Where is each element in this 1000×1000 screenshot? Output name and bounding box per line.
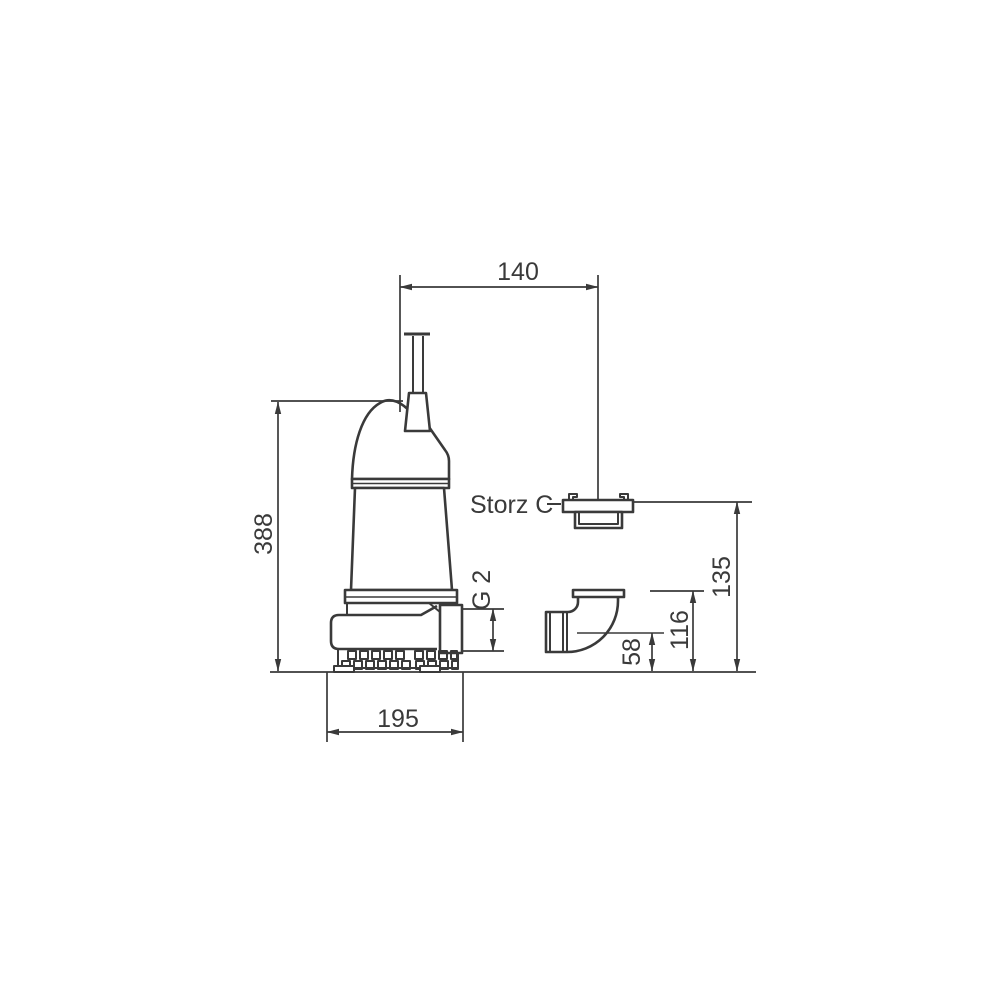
dim-label-135: 135 bbox=[708, 556, 736, 598]
motor-body bbox=[351, 488, 452, 590]
right-foot bbox=[420, 666, 440, 672]
pump-side-view bbox=[331, 334, 462, 672]
ext-lines-port-bore bbox=[462, 609, 504, 651]
dim-label-388: 388 bbox=[250, 513, 278, 555]
elbow-inner-curve bbox=[567, 597, 618, 652]
coupling-flange bbox=[563, 500, 633, 512]
elbow-socket-walls bbox=[550, 612, 567, 652]
technical-drawing-canvas: 140 388 195 G 2 58 116 135 Storz C bbox=[0, 0, 1000, 1000]
discharge-port bbox=[440, 605, 462, 653]
coupling-tail bbox=[575, 512, 622, 528]
left-foot bbox=[334, 666, 354, 672]
dimensions: 140 388 195 G 2 58 116 135 Storz C bbox=[250, 258, 752, 742]
cable bbox=[413, 336, 423, 393]
dim-label-195: 195 bbox=[377, 705, 419, 733]
pump-dimension-drawing: 140 388 195 G 2 58 116 135 Storz C bbox=[0, 0, 1000, 1000]
elbow-top-flange bbox=[573, 590, 624, 597]
coupling-type-label: Storz C bbox=[470, 491, 553, 519]
storz-coupling bbox=[547, 494, 633, 528]
dim-label-116: 116 bbox=[666, 610, 694, 650]
elbow-fitting bbox=[546, 590, 664, 652]
dim-label-g2: G 2 bbox=[468, 570, 496, 610]
dim-label-140: 140 bbox=[497, 258, 539, 286]
cable-gland bbox=[405, 393, 430, 431]
dim-label-58: 58 bbox=[618, 638, 646, 666]
suction-strainer bbox=[334, 649, 458, 672]
